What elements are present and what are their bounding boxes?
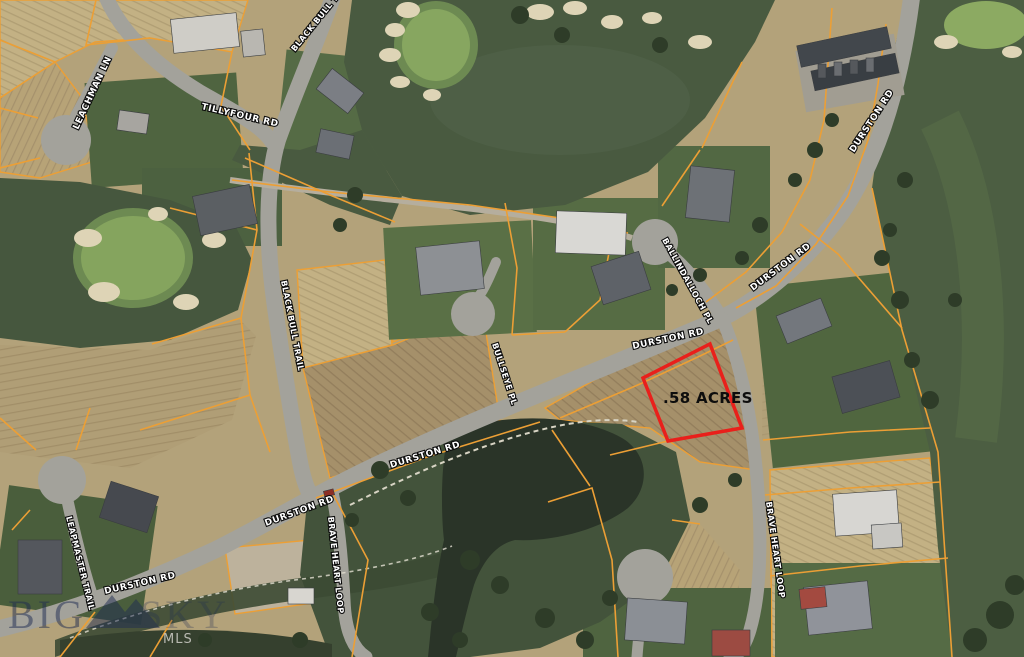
aerial-map: LEACHMAN LN TILLYFOUR RD BLACK BULL TRAI… [0,0,1024,657]
watermark-word-sky: SKY [140,592,229,637]
watermark-word-big: BIG [8,592,86,637]
mls-text: MLS [163,632,193,647]
acreage-label: .58 ACRES [663,389,753,407]
